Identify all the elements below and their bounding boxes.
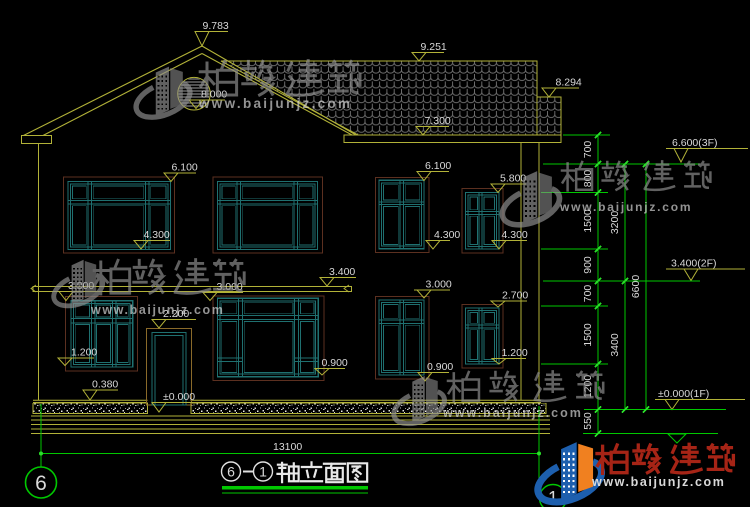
svg-text:700: 700 bbox=[582, 141, 594, 159]
svg-text:7.300: 7.300 bbox=[425, 115, 451, 127]
svg-text:3400: 3400 bbox=[609, 333, 621, 357]
svg-text:www.baijunjz.com: www.baijunjz.com bbox=[442, 406, 583, 420]
svg-text:6: 6 bbox=[35, 472, 47, 495]
svg-text:1.200: 1.200 bbox=[502, 347, 528, 359]
svg-text:0.900: 0.900 bbox=[427, 361, 453, 373]
svg-text:6: 6 bbox=[227, 464, 235, 480]
svg-text:±0.000(1F): ±0.000(1F) bbox=[658, 388, 709, 400]
svg-text:0.380: 0.380 bbox=[92, 379, 118, 391]
svg-text:13100: 13100 bbox=[273, 441, 302, 453]
svg-text:3.400(2F): 3.400(2F) bbox=[671, 258, 717, 270]
svg-text:4.300: 4.300 bbox=[144, 229, 170, 241]
svg-text:1: 1 bbox=[259, 464, 267, 480]
svg-text:www.baijunjz.com: www.baijunjz.com bbox=[90, 303, 224, 317]
svg-text:2.700: 2.700 bbox=[502, 290, 528, 302]
svg-text:1500: 1500 bbox=[582, 323, 594, 347]
svg-text:6.100: 6.100 bbox=[425, 160, 451, 172]
svg-text:3200: 3200 bbox=[609, 211, 621, 235]
svg-text:4.300: 4.300 bbox=[434, 229, 460, 241]
svg-text:www.baijunjz.com: www.baijunjz.com bbox=[559, 200, 692, 214]
svg-text:0.900: 0.900 bbox=[322, 357, 348, 369]
svg-text:3.000: 3.000 bbox=[426, 279, 452, 291]
svg-text:900: 900 bbox=[582, 256, 594, 274]
svg-text:9.251: 9.251 bbox=[421, 41, 447, 53]
svg-text:8.294: 8.294 bbox=[556, 77, 582, 89]
svg-text:550: 550 bbox=[582, 412, 594, 430]
svg-text:3.400: 3.400 bbox=[329, 266, 355, 278]
svg-text:www.baijunjz.com: www.baijunjz.com bbox=[198, 96, 352, 111]
svg-text:4.300: 4.300 bbox=[502, 229, 528, 241]
svg-text:5.800: 5.800 bbox=[500, 173, 526, 185]
svg-text:6.100: 6.100 bbox=[172, 162, 198, 174]
svg-text:9.783: 9.783 bbox=[203, 20, 229, 32]
svg-text:www.baijunjz.com: www.baijunjz.com bbox=[591, 475, 725, 489]
svg-text:700: 700 bbox=[582, 285, 594, 303]
svg-text:±0.000: ±0.000 bbox=[163, 391, 195, 403]
svg-text:6600: 6600 bbox=[630, 275, 642, 299]
svg-text:1.200: 1.200 bbox=[71, 347, 97, 359]
svg-text:6.600(3F): 6.600(3F) bbox=[672, 137, 718, 149]
